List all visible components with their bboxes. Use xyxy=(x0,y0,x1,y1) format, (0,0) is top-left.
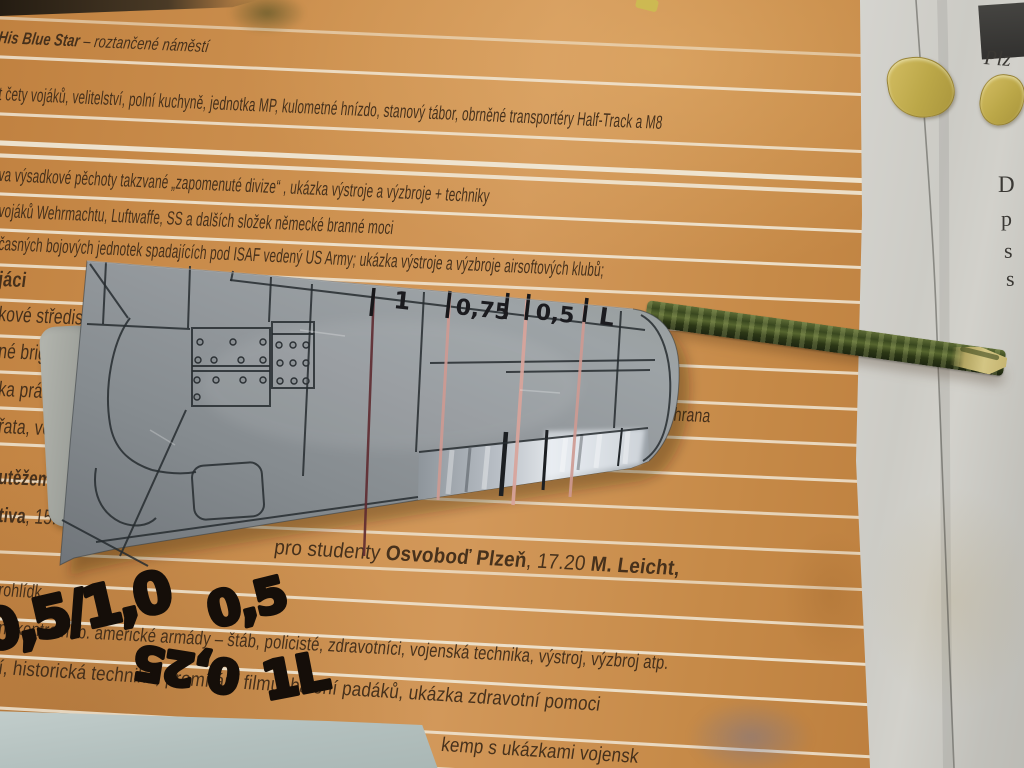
photo-scene: His Blue Star – roztančené náměstí t čet… xyxy=(0,0,1024,768)
paint-smudge-blue xyxy=(688,700,813,768)
wing-mark-05: 0,5 xyxy=(534,300,575,329)
wing-mark-1: 1 xyxy=(392,286,412,316)
model-wing: 1 0,75 0,5 L xyxy=(0,0,1024,768)
